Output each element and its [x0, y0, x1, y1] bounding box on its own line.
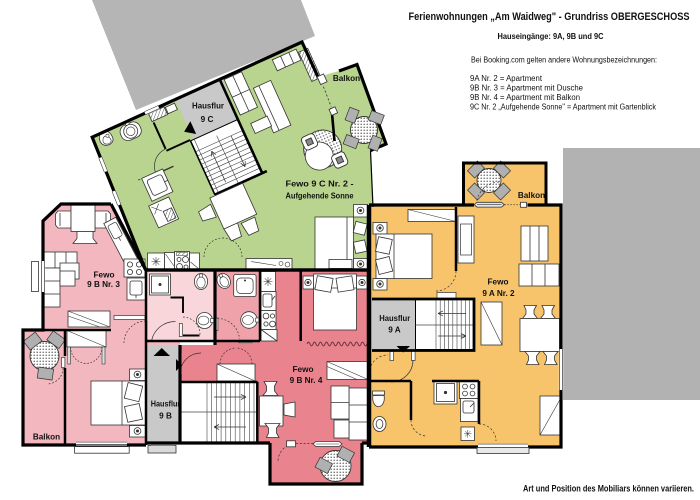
svg-text:9B Nr. 3 = Apartment mit Dusch: 9B Nr. 3 = Apartment mit Dusche: [470, 84, 583, 93]
svg-text:Balkon: Balkon: [333, 74, 360, 83]
svg-text:Hausflur: Hausflur: [151, 400, 181, 409]
svg-text:Aufgehende Sonne: Aufgehende Sonne: [286, 192, 354, 201]
svg-text:9 B Nr. 4: 9 B Nr. 4: [290, 376, 323, 385]
svg-text:Fewo: Fewo: [488, 278, 509, 287]
svg-text:9 B Nr. 3: 9 B Nr. 3: [87, 280, 120, 289]
svg-text:9 A: 9 A: [388, 326, 401, 335]
svg-text:Balkon: Balkon: [518, 191, 545, 200]
svg-text:Fewo: Fewo: [293, 365, 314, 374]
svg-text:Hausflur: Hausflur: [192, 102, 225, 111]
svg-text:Fewo 9 C Nr. 2 -: Fewo 9 C Nr. 2 -: [286, 180, 354, 189]
svg-text:9C Nr. 2 „Aufgehende Sonne" =: 9C Nr. 2 „Aufgehende Sonne" = Apartment …: [470, 103, 656, 112]
svg-text:9 B: 9 B: [159, 412, 172, 421]
svg-text:9 A Nr. 2: 9 A Nr. 2: [482, 289, 515, 298]
svg-text:Balkon: Balkon: [33, 433, 60, 442]
svg-text:9B Nr. 4 = Apartment mit Balko: 9B Nr. 4 = Apartment mit Balkon: [470, 93, 580, 102]
svg-text:Hausflur: Hausflur: [379, 314, 411, 323]
svg-text:Art und Position des Mobiliars: Art und Position des Mobiliars können va…: [523, 484, 694, 494]
svg-text:Bei Booking.com gelten andere: Bei Booking.com gelten andere Wohnungsbe…: [471, 56, 657, 65]
svg-text:9A Nr. 2 = Apartment: 9A Nr. 2 = Apartment: [470, 74, 543, 83]
svg-text:Ferienwohnungen „Am Waidweg" -: Ferienwohnungen „Am Waidweg" - Grundriss…: [409, 11, 690, 23]
svg-text:Fewo: Fewo: [94, 271, 115, 280]
svg-text:9 C: 9 C: [201, 115, 214, 124]
svg-text:Hauseingänge: 9A, 9B und 9C: Hauseingänge: 9A, 9B und 9C: [498, 32, 604, 41]
